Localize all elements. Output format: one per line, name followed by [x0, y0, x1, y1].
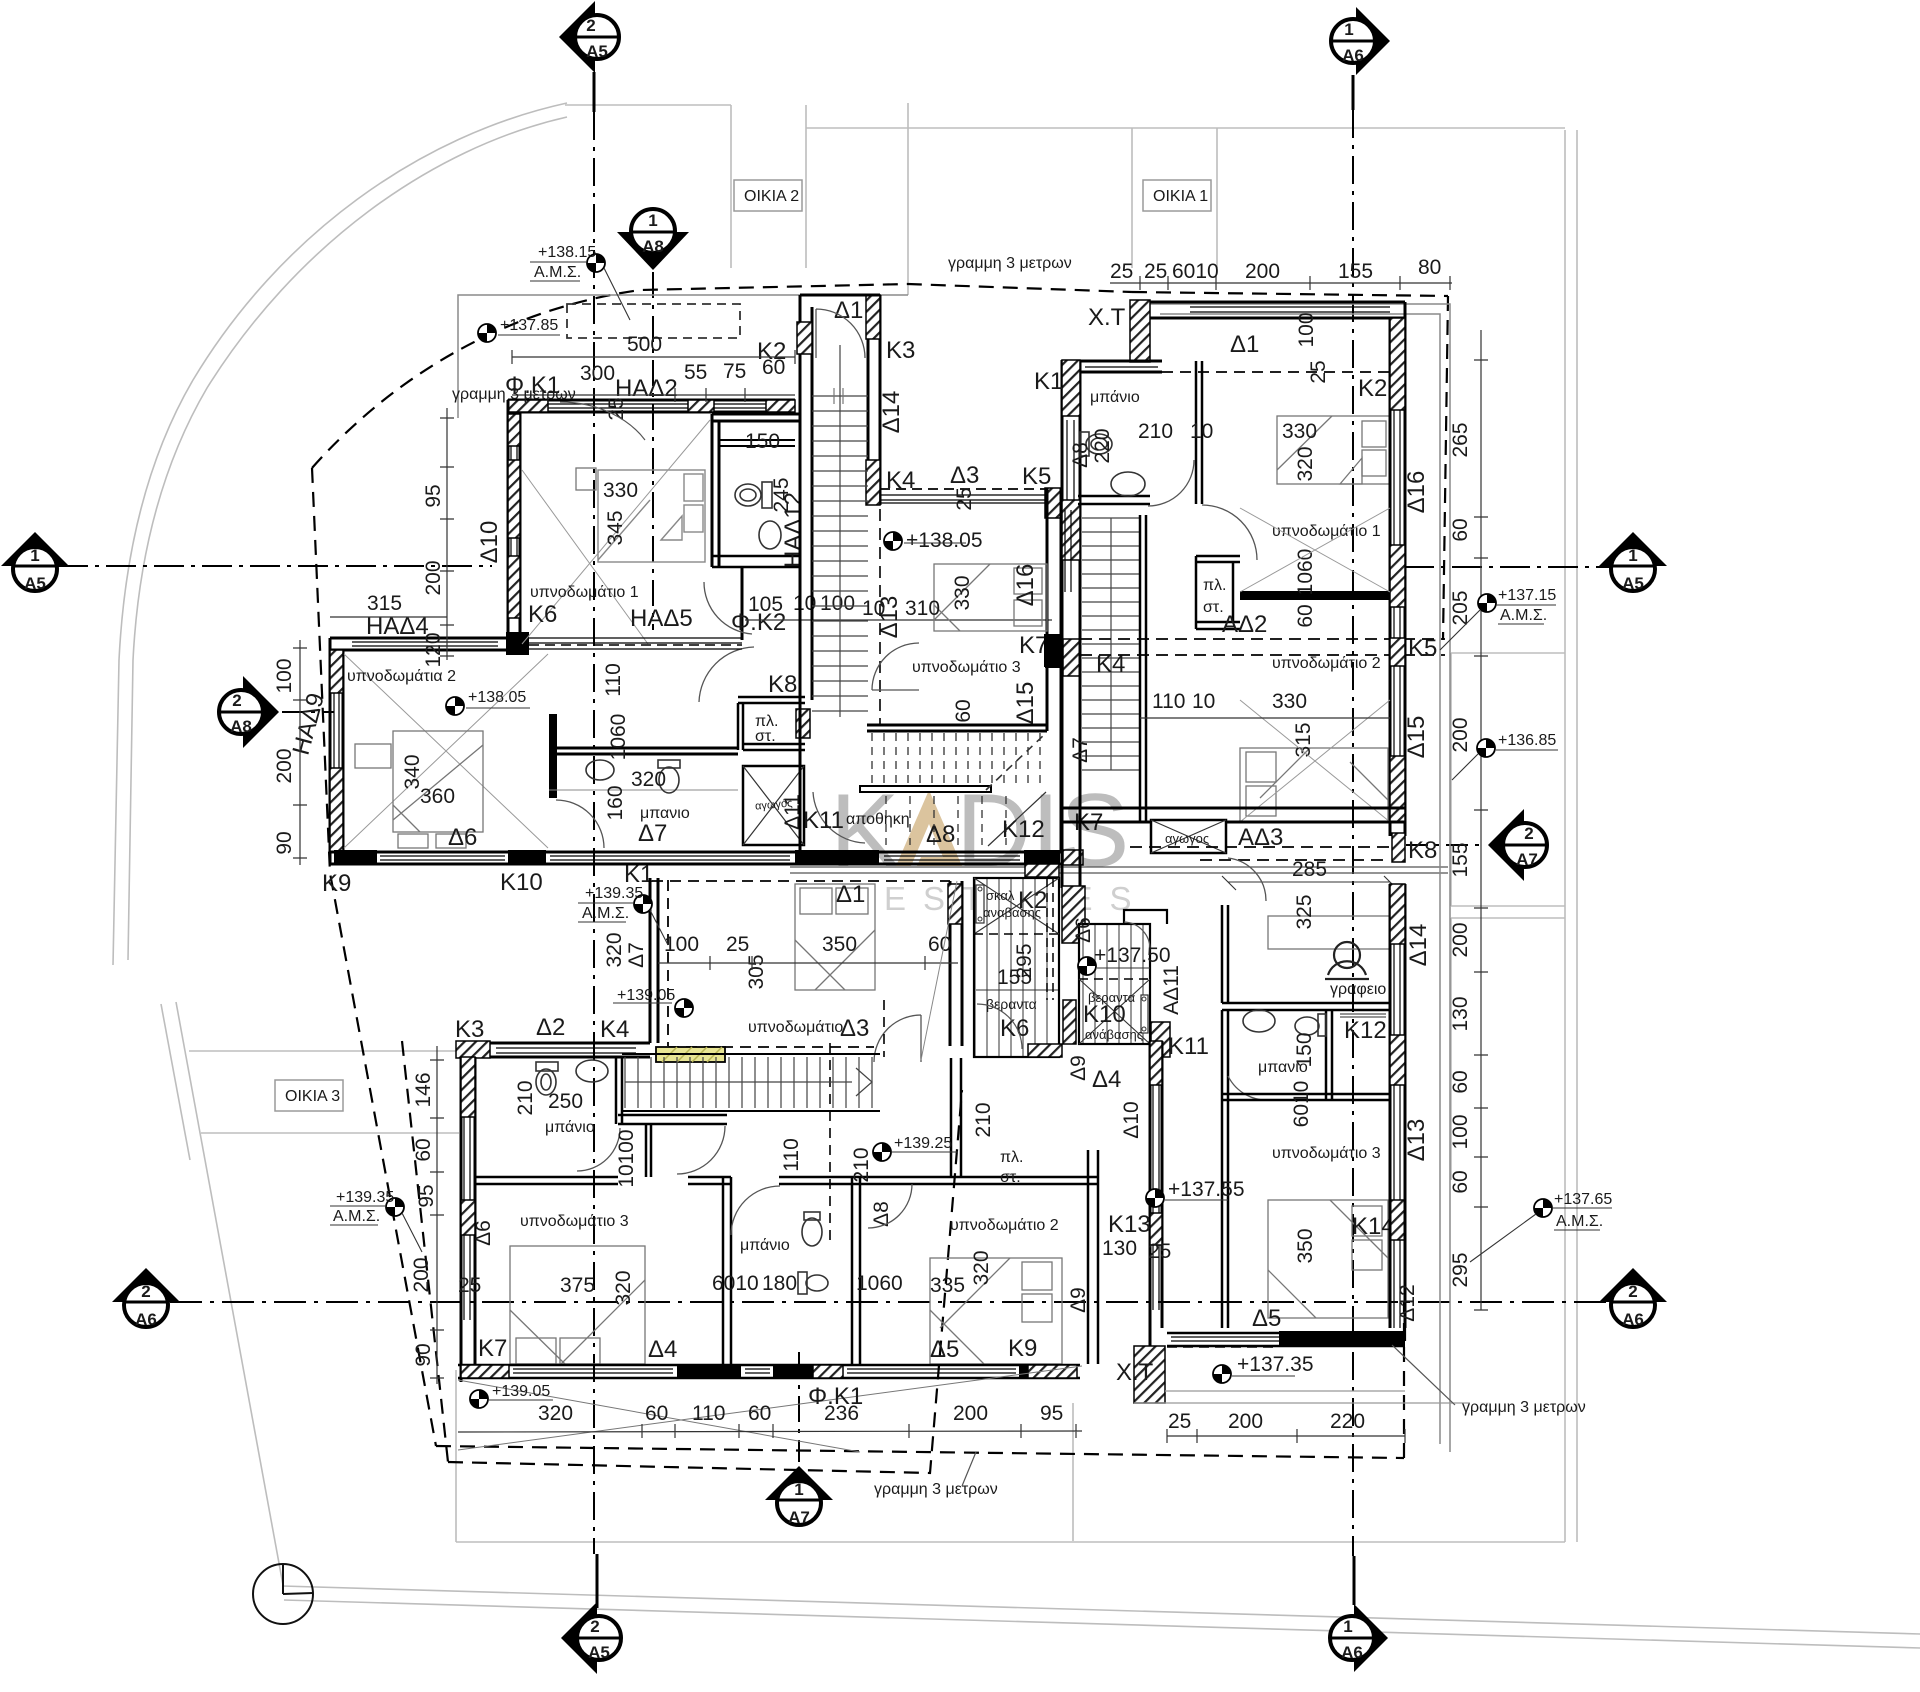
svg-text:+137.55: +137.55	[1168, 1178, 1245, 1201]
svg-text:320: 320	[538, 1402, 573, 1425]
svg-text:υπνοδωμάτια 2: υπνοδωμάτια 2	[347, 668, 456, 685]
svg-text:K5: K5	[1022, 463, 1051, 490]
svg-text:350: 350	[822, 933, 857, 956]
svg-text:60: 60	[412, 1138, 435, 1161]
svg-text:Δ1: Δ1	[1230, 331, 1259, 358]
svg-text:200: 200	[953, 1402, 988, 1425]
svg-text:μπάνιο: μπάνιο	[1090, 389, 1140, 406]
svg-text:Δ9: Δ9	[1067, 1055, 1090, 1081]
svg-text:80: 80	[1418, 256, 1441, 279]
svg-text:γραφειο: γραφειο	[1330, 981, 1386, 998]
svg-text:K11: K11	[1168, 1033, 1209, 1060]
svg-text:A6: A6	[135, 1310, 157, 1329]
svg-text:100: 100	[1449, 1114, 1472, 1149]
svg-text:95: 95	[1040, 1402, 1063, 1425]
svg-text:146: 146	[412, 1072, 435, 1107]
svg-text:325: 325	[1293, 894, 1316, 929]
svg-text:60: 60	[762, 356, 785, 379]
svg-text:Α.Μ.Σ.: Α.Μ.Σ.	[582, 905, 629, 922]
svg-text:75: 75	[723, 360, 746, 383]
svg-text:100: 100	[1295, 312, 1318, 347]
svg-text:330: 330	[1272, 690, 1307, 713]
svg-text:1: 1	[30, 546, 39, 565]
svg-text:βεραντα: βεραντα	[986, 996, 1037, 1012]
svg-text:K6: K6	[528, 601, 557, 628]
svg-text:γραμμη 3 μετρων: γραμμη 3 μετρων	[874, 1481, 998, 1498]
svg-text:60: 60	[1449, 518, 1472, 541]
svg-text:Χ.Τ: Χ.Τ	[1088, 304, 1126, 331]
svg-text:100: 100	[615, 1129, 638, 1164]
svg-text:Δ6: Δ6	[1072, 917, 1095, 943]
svg-text:2: 2	[590, 1617, 599, 1636]
svg-text:υπνοδωμάτιο 1: υπνοδωμάτιο 1	[1272, 523, 1381, 540]
svg-text:Δ15: Δ15	[1403, 716, 1430, 759]
svg-text:υπνοδωμάτιο 2: υπνοδωμάτιο 2	[950, 1217, 1059, 1234]
svg-text:K11: K11	[803, 807, 844, 834]
svg-text:1: 1	[794, 1480, 803, 1499]
svg-text:A6: A6	[1622, 1310, 1644, 1329]
svg-text:155: 155	[1449, 842, 1472, 877]
svg-text:πλ.: πλ.	[1000, 1149, 1023, 1166]
svg-text:Δ8: Δ8	[1069, 442, 1092, 468]
svg-text:υπνοδωμάτιο 2: υπνοδωμάτιο 2	[1272, 655, 1381, 672]
svg-text:υπνοδωμάτιο 1: υπνοδωμάτιο 1	[530, 584, 639, 601]
svg-text:10: 10	[1190, 420, 1213, 443]
svg-text:Δ3: Δ3	[840, 1015, 869, 1042]
svg-text:Δ1: Δ1	[836, 881, 865, 908]
svg-text:320: 320	[631, 768, 666, 791]
svg-text:A5: A5	[1622, 574, 1644, 593]
svg-text:330: 330	[1282, 420, 1317, 443]
svg-text:γραμμη 3 μετρων: γραμμη 3 μετρων	[1462, 1399, 1586, 1416]
svg-text:A8: A8	[230, 717, 252, 736]
svg-text:25: 25	[1110, 260, 1133, 283]
svg-text:25: 25	[1144, 260, 1167, 283]
svg-text:60: 60	[928, 933, 951, 956]
svg-text:100: 100	[664, 933, 699, 956]
svg-text:Α.Μ.Σ.: Α.Μ.Σ.	[1500, 607, 1547, 624]
svg-text:γραμμη 3 μετρων: γραμμη 3 μετρων	[452, 386, 576, 403]
svg-text:K5: K5	[1408, 635, 1437, 662]
svg-text:305: 305	[745, 954, 768, 989]
svg-text:K2: K2	[1018, 887, 1047, 914]
svg-text:345: 345	[604, 510, 627, 545]
svg-text:K8: K8	[768, 671, 797, 698]
svg-text:2: 2	[141, 1282, 150, 1301]
svg-text:310: 310	[905, 597, 940, 620]
svg-text:A5: A5	[24, 574, 46, 593]
svg-text:1: 1	[1344, 20, 1353, 39]
svg-text:Δ9: Δ9	[1067, 1287, 1090, 1313]
svg-text:200: 200	[273, 748, 296, 783]
svg-text:Δ8: Δ8	[926, 821, 955, 848]
svg-text:2: 2	[1524, 824, 1533, 843]
svg-text:Δ4: Δ4	[1092, 1066, 1121, 1093]
svg-text:A5: A5	[588, 1643, 610, 1662]
svg-text:ανάβασης: ανάβασης	[1085, 1027, 1143, 1042]
svg-text:2: 2	[232, 691, 241, 710]
svg-text:Δ12: Δ12	[1396, 1284, 1419, 1321]
svg-text:335: 335	[930, 1274, 965, 1297]
svg-text:90: 90	[412, 1343, 435, 1366]
svg-text:1: 1	[648, 211, 657, 230]
svg-text:+137.50: +137.50	[1094, 944, 1171, 967]
svg-text:K7: K7	[478, 1335, 507, 1362]
svg-text:95: 95	[415, 1184, 438, 1207]
svg-text:K4: K4	[1096, 651, 1125, 678]
svg-text:Δ14: Δ14	[1405, 924, 1432, 967]
svg-text:+139.35: +139.35	[336, 1189, 394, 1206]
svg-text:25: 25	[1307, 360, 1330, 383]
svg-text:315: 315	[367, 592, 402, 615]
svg-text:αποθηκη: αποθηκη	[846, 811, 910, 828]
svg-text:K9: K9	[1008, 1335, 1037, 1362]
svg-text:Δ7: Δ7	[638, 820, 667, 847]
svg-text:1: 1	[1628, 546, 1637, 565]
svg-text:K14: K14	[1352, 1213, 1395, 1240]
svg-text:25: 25	[458, 1274, 481, 1297]
svg-text:A6: A6	[1341, 1643, 1363, 1662]
svg-text:100: 100	[273, 658, 296, 693]
svg-text:υπνοδωμάτιο 3: υπνοδωμάτιο 3	[1272, 1145, 1381, 1162]
svg-text:+138.05: +138.05	[906, 529, 983, 552]
svg-text:Δ5: Δ5	[1252, 1305, 1281, 1332]
svg-text:υπνοδωμάτιο 3: υπνοδωμάτιο 3	[520, 1213, 629, 1230]
svg-text:375: 375	[560, 1274, 595, 1297]
svg-text:OIKIA 2: OIKIA 2	[744, 188, 799, 205]
svg-text:K7: K7	[1019, 632, 1048, 659]
svg-text:330: 330	[951, 575, 974, 610]
svg-text:στ.: στ.	[1203, 599, 1224, 616]
svg-text:1060: 1060	[856, 1272, 903, 1295]
svg-text:Α.Μ.Σ.: Α.Μ.Σ.	[534, 264, 581, 281]
svg-text:60: 60	[748, 1402, 771, 1425]
svg-text:210: 210	[514, 1080, 537, 1115]
svg-text:A8: A8	[642, 237, 664, 256]
svg-text:105: 105	[748, 593, 783, 616]
svg-text:25: 25	[1148, 1240, 1171, 1263]
svg-text:K3: K3	[886, 337, 915, 364]
svg-text:+137.15: +137.15	[1498, 587, 1556, 604]
svg-text:150: 150	[745, 430, 780, 453]
svg-text:60: 60	[1294, 604, 1317, 627]
svg-text:Δ4: Δ4	[648, 1336, 677, 1363]
svg-text:1060: 1060	[607, 714, 630, 761]
svg-text:320: 320	[970, 1250, 993, 1285]
svg-text:320: 320	[603, 932, 626, 967]
svg-text:ΗΑΔ12: ΗΑΔ12	[780, 492, 807, 568]
svg-text:200: 200	[422, 560, 445, 595]
svg-text:Δ10: Δ10	[476, 521, 503, 564]
svg-text:200: 200	[1449, 922, 1472, 957]
svg-text:25: 25	[726, 933, 749, 956]
svg-text:2: 2	[586, 16, 595, 35]
svg-text:210: 210	[1138, 420, 1173, 443]
svg-text:Δ10: Δ10	[1120, 1101, 1143, 1138]
svg-text:+137.35: +137.35	[1237, 1353, 1314, 1376]
svg-text:320: 320	[1294, 446, 1317, 481]
svg-text:γραμμη 3 μετρων: γραμμη 3 μετρων	[948, 255, 1072, 272]
svg-text:236: 236	[824, 1402, 859, 1425]
svg-text:90: 90	[273, 831, 296, 854]
svg-text:330: 330	[603, 479, 638, 502]
svg-text:K9: K9	[322, 870, 351, 897]
svg-text:A7: A7	[1516, 850, 1538, 869]
svg-text:10: 10	[1192, 690, 1215, 713]
svg-text:110: 110	[602, 663, 625, 696]
svg-text:πλ.: πλ.	[1203, 577, 1226, 594]
svg-text:υπνοδωμάτιο: υπνοδωμάτιο	[748, 1019, 843, 1036]
svg-text:ΑΔ2: ΑΔ2	[1222, 611, 1267, 638]
svg-text:Δ7: Δ7	[625, 942, 648, 968]
svg-text:110: 110	[1152, 690, 1185, 713]
svg-text:Δ3: Δ3	[950, 462, 979, 489]
svg-text:60: 60	[1449, 1170, 1472, 1193]
svg-text:6010: 6010	[1172, 260, 1219, 283]
svg-text:ΗΑΔ5: ΗΑΔ5	[630, 605, 693, 632]
svg-text:+136.85: +136.85	[1498, 732, 1556, 749]
svg-text:+138.05: +138.05	[468, 689, 526, 706]
svg-text:K4: K4	[600, 1016, 629, 1043]
svg-text:K6: K6	[1000, 1015, 1029, 1042]
svg-text:στ.: στ.	[755, 728, 776, 745]
svg-text:ΑΔ11: ΑΔ11	[1160, 965, 1183, 1015]
svg-text:60: 60	[645, 1402, 668, 1425]
svg-text:6010: 6010	[1290, 1081, 1313, 1128]
svg-text:320: 320	[612, 1270, 635, 1305]
svg-text:250: 250	[548, 1090, 583, 1113]
svg-text:220: 220	[1330, 1410, 1365, 1433]
svg-text:υπνοδωμάτιο 3: υπνοδωμάτιο 3	[912, 659, 1021, 676]
svg-text:6010: 6010	[712, 1272, 759, 1295]
svg-text:295: 295	[1449, 1252, 1472, 1287]
svg-text:Δ16: Δ16	[1403, 471, 1430, 514]
svg-text:Δ14: Δ14	[878, 391, 905, 434]
svg-text:160: 160	[604, 785, 627, 820]
svg-text:Δ6: Δ6	[448, 824, 477, 851]
svg-text:+139.25: +139.25	[894, 1135, 952, 1152]
svg-text:K10: K10	[500, 869, 543, 896]
svg-text:αγωγος: αγωγος	[1165, 831, 1209, 846]
svg-text:295: 295	[1013, 943, 1036, 978]
svg-text:155: 155	[1338, 260, 1373, 283]
svg-text:2: 2	[1628, 1282, 1637, 1301]
svg-text:K12: K12	[1344, 1017, 1387, 1044]
svg-text:+138.15: +138.15	[538, 244, 596, 261]
svg-text:K13: K13	[1108, 1211, 1151, 1238]
svg-text:265: 265	[1449, 422, 1472, 457]
svg-text:Κ10: Κ10	[1083, 1001, 1126, 1028]
svg-text:Χ.Τ: Χ.Τ	[1116, 1359, 1154, 1386]
svg-text:+139.05: +139.05	[492, 1383, 550, 1400]
svg-text:60: 60	[1449, 1070, 1472, 1093]
svg-text:150: 150	[1293, 1032, 1316, 1067]
svg-text:200: 200	[410, 1257, 433, 1292]
svg-text:360: 360	[420, 785, 455, 808]
svg-text:Δ16: Δ16	[1012, 564, 1039, 607]
svg-text:στ.: στ.	[1000, 1169, 1021, 1186]
svg-text:285: 285	[1292, 858, 1327, 881]
svg-text:Δ2: Δ2	[536, 1014, 565, 1041]
svg-text:ΗΑΔ2: ΗΑΔ2	[615, 375, 678, 402]
svg-text:Δ6: Δ6	[472, 1220, 495, 1246]
svg-text:10: 10	[615, 1164, 638, 1187]
svg-text:1: 1	[1343, 1617, 1352, 1636]
svg-text:130: 130	[1102, 1237, 1137, 1260]
svg-text:K3: K3	[455, 1016, 484, 1043]
svg-text:55: 55	[684, 361, 707, 384]
svg-text:130: 130	[1449, 996, 1472, 1031]
svg-text:Δ7: Δ7	[1069, 737, 1092, 763]
svg-text:K4: K4	[886, 467, 915, 494]
svg-text:+137.65: +137.65	[1554, 1191, 1612, 1208]
svg-text:OIKIA 3: OIKIA 3	[285, 1088, 340, 1105]
svg-text:205: 205	[1449, 590, 1472, 625]
svg-text:500: 500	[627, 333, 662, 356]
svg-text:Δ13: Δ13	[876, 596, 903, 639]
svg-text:Δ1: Δ1	[834, 297, 863, 324]
svg-text:300: 300	[580, 362, 615, 385]
svg-text:A5: A5	[586, 42, 608, 61]
svg-text:Δ13: Δ13	[1403, 1119, 1430, 1162]
svg-text:350: 350	[1294, 1228, 1317, 1263]
svg-text:25: 25	[1168, 1410, 1191, 1433]
svg-text:Δ5: Δ5	[930, 1336, 959, 1363]
svg-text:100: 100	[820, 592, 855, 615]
svg-text:110: 110	[692, 1402, 725, 1425]
svg-text:K12: K12	[1002, 816, 1045, 843]
svg-text:+139.05: +139.05	[617, 987, 675, 1004]
svg-text:25: 25	[953, 487, 976, 510]
svg-text:200: 200	[1449, 717, 1472, 752]
svg-text:Α.Μ.Σ.: Α.Μ.Σ.	[1556, 1213, 1603, 1230]
svg-text:200: 200	[1228, 1410, 1263, 1433]
svg-text:Α.Μ.Σ.: Α.Μ.Σ.	[333, 1208, 380, 1225]
svg-text:OIKIA 1: OIKIA 1	[1153, 188, 1208, 205]
svg-text:A7: A7	[788, 1508, 810, 1527]
svg-text:μπάνιο: μπάνιο	[740, 1237, 790, 1254]
svg-text:K2: K2	[1358, 375, 1387, 402]
svg-text:A6: A6	[1342, 46, 1364, 65]
svg-text:Δ15: Δ15	[1012, 682, 1039, 725]
svg-text:110: 110	[780, 1138, 803, 1171]
svg-text:+137.85: +137.85	[500, 317, 558, 334]
svg-text:60: 60	[952, 699, 975, 722]
svg-text:K1: K1	[1034, 368, 1063, 395]
svg-text:σκαλ: σκαλ	[986, 888, 1015, 903]
svg-text:210: 210	[850, 1147, 873, 1182]
svg-text:95: 95	[422, 484, 445, 507]
svg-text:μπάνιο: μπάνιο	[545, 1119, 595, 1136]
svg-text:220: 220	[1091, 428, 1114, 463]
svg-text:+139.35: +139.35	[585, 885, 643, 902]
svg-text:210: 210	[972, 1102, 995, 1137]
svg-text:180: 180	[762, 1272, 797, 1295]
svg-text:200: 200	[1245, 260, 1280, 283]
svg-text:ΑΔ3: ΑΔ3	[1238, 824, 1283, 851]
svg-text:K8: K8	[1408, 837, 1437, 864]
